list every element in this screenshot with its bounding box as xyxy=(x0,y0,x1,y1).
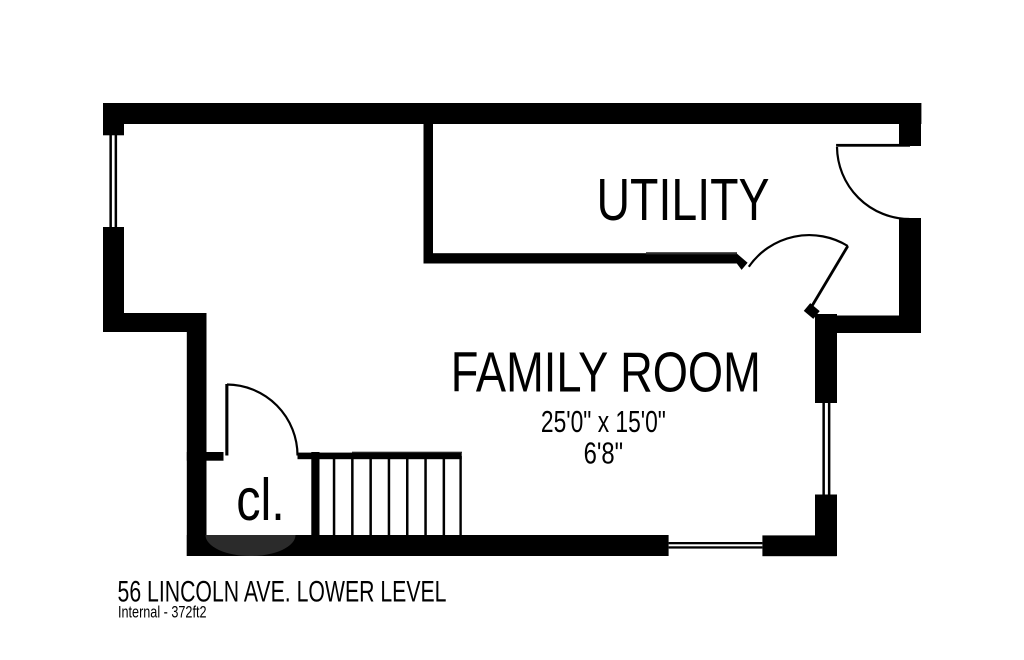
svg-text:6'8": 6'8" xyxy=(584,436,624,471)
svg-text:UTILITY: UTILITY xyxy=(597,167,770,233)
svg-text:cl.: cl. xyxy=(236,466,285,533)
svg-text:Internal - 372ft2: Internal - 372ft2 xyxy=(118,604,207,622)
svg-text:25'0" x 15'0": 25'0" x 15'0" xyxy=(541,404,666,439)
svg-text:FAMILY ROOM: FAMILY ROOM xyxy=(451,341,761,405)
